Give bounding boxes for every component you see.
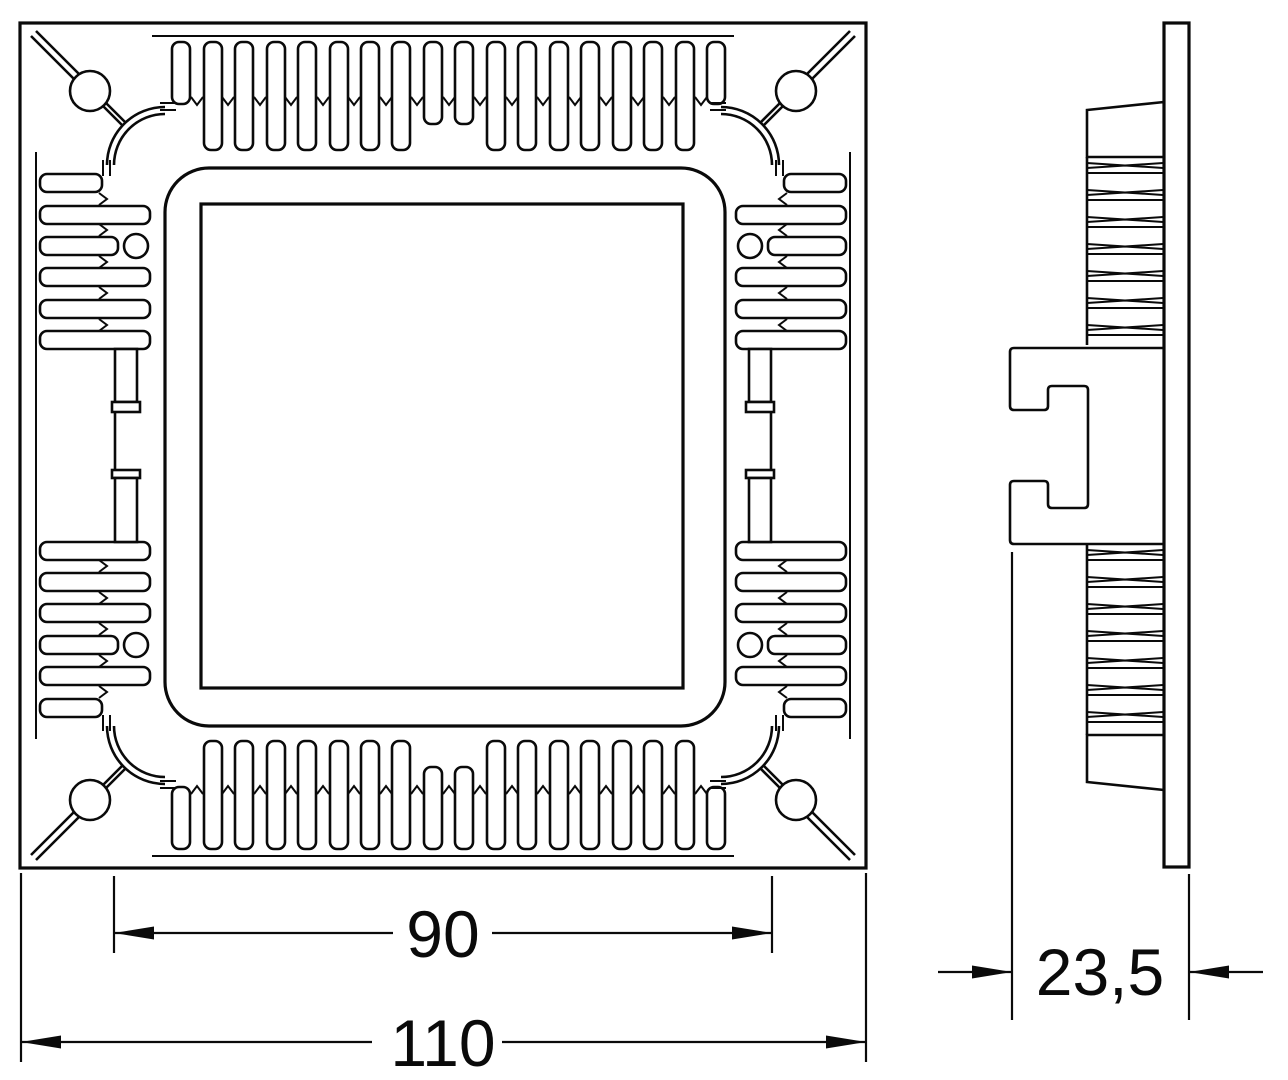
side-fins-upper: [1087, 163, 1163, 335]
arrow-left-110: [21, 1036, 61, 1049]
body-bottom-plate: [1087, 735, 1164, 790]
front-view: [20, 23, 866, 868]
arrow-right-90: [732, 927, 772, 940]
mounting-bracket: [1010, 348, 1163, 544]
body-top-plate: [1087, 102, 1164, 157]
dimension-label-90: 90: [406, 897, 479, 971]
dimension-depth: 23,5: [938, 552, 1263, 1020]
side-view: [1010, 23, 1189, 867]
dimension-label-110: 110: [390, 1006, 495, 1080]
arrow-right-110: [826, 1036, 866, 1049]
dimension-label-depth: 23,5: [1036, 935, 1164, 1009]
side-fins-lower: [1087, 550, 1163, 722]
front-bezel: [1164, 23, 1189, 867]
arrow-left-90: [114, 927, 154, 940]
dimension-drawing: 90 110 23,5: [0, 0, 1288, 1080]
arrow-right-depth: [1189, 966, 1229, 979]
led-aperture: [201, 204, 683, 688]
dimension-inner-width: 90: [114, 876, 772, 971]
arrow-left-depth: [972, 966, 1012, 979]
drawing-canvas: 90 110 23,5: [0, 0, 1288, 1080]
